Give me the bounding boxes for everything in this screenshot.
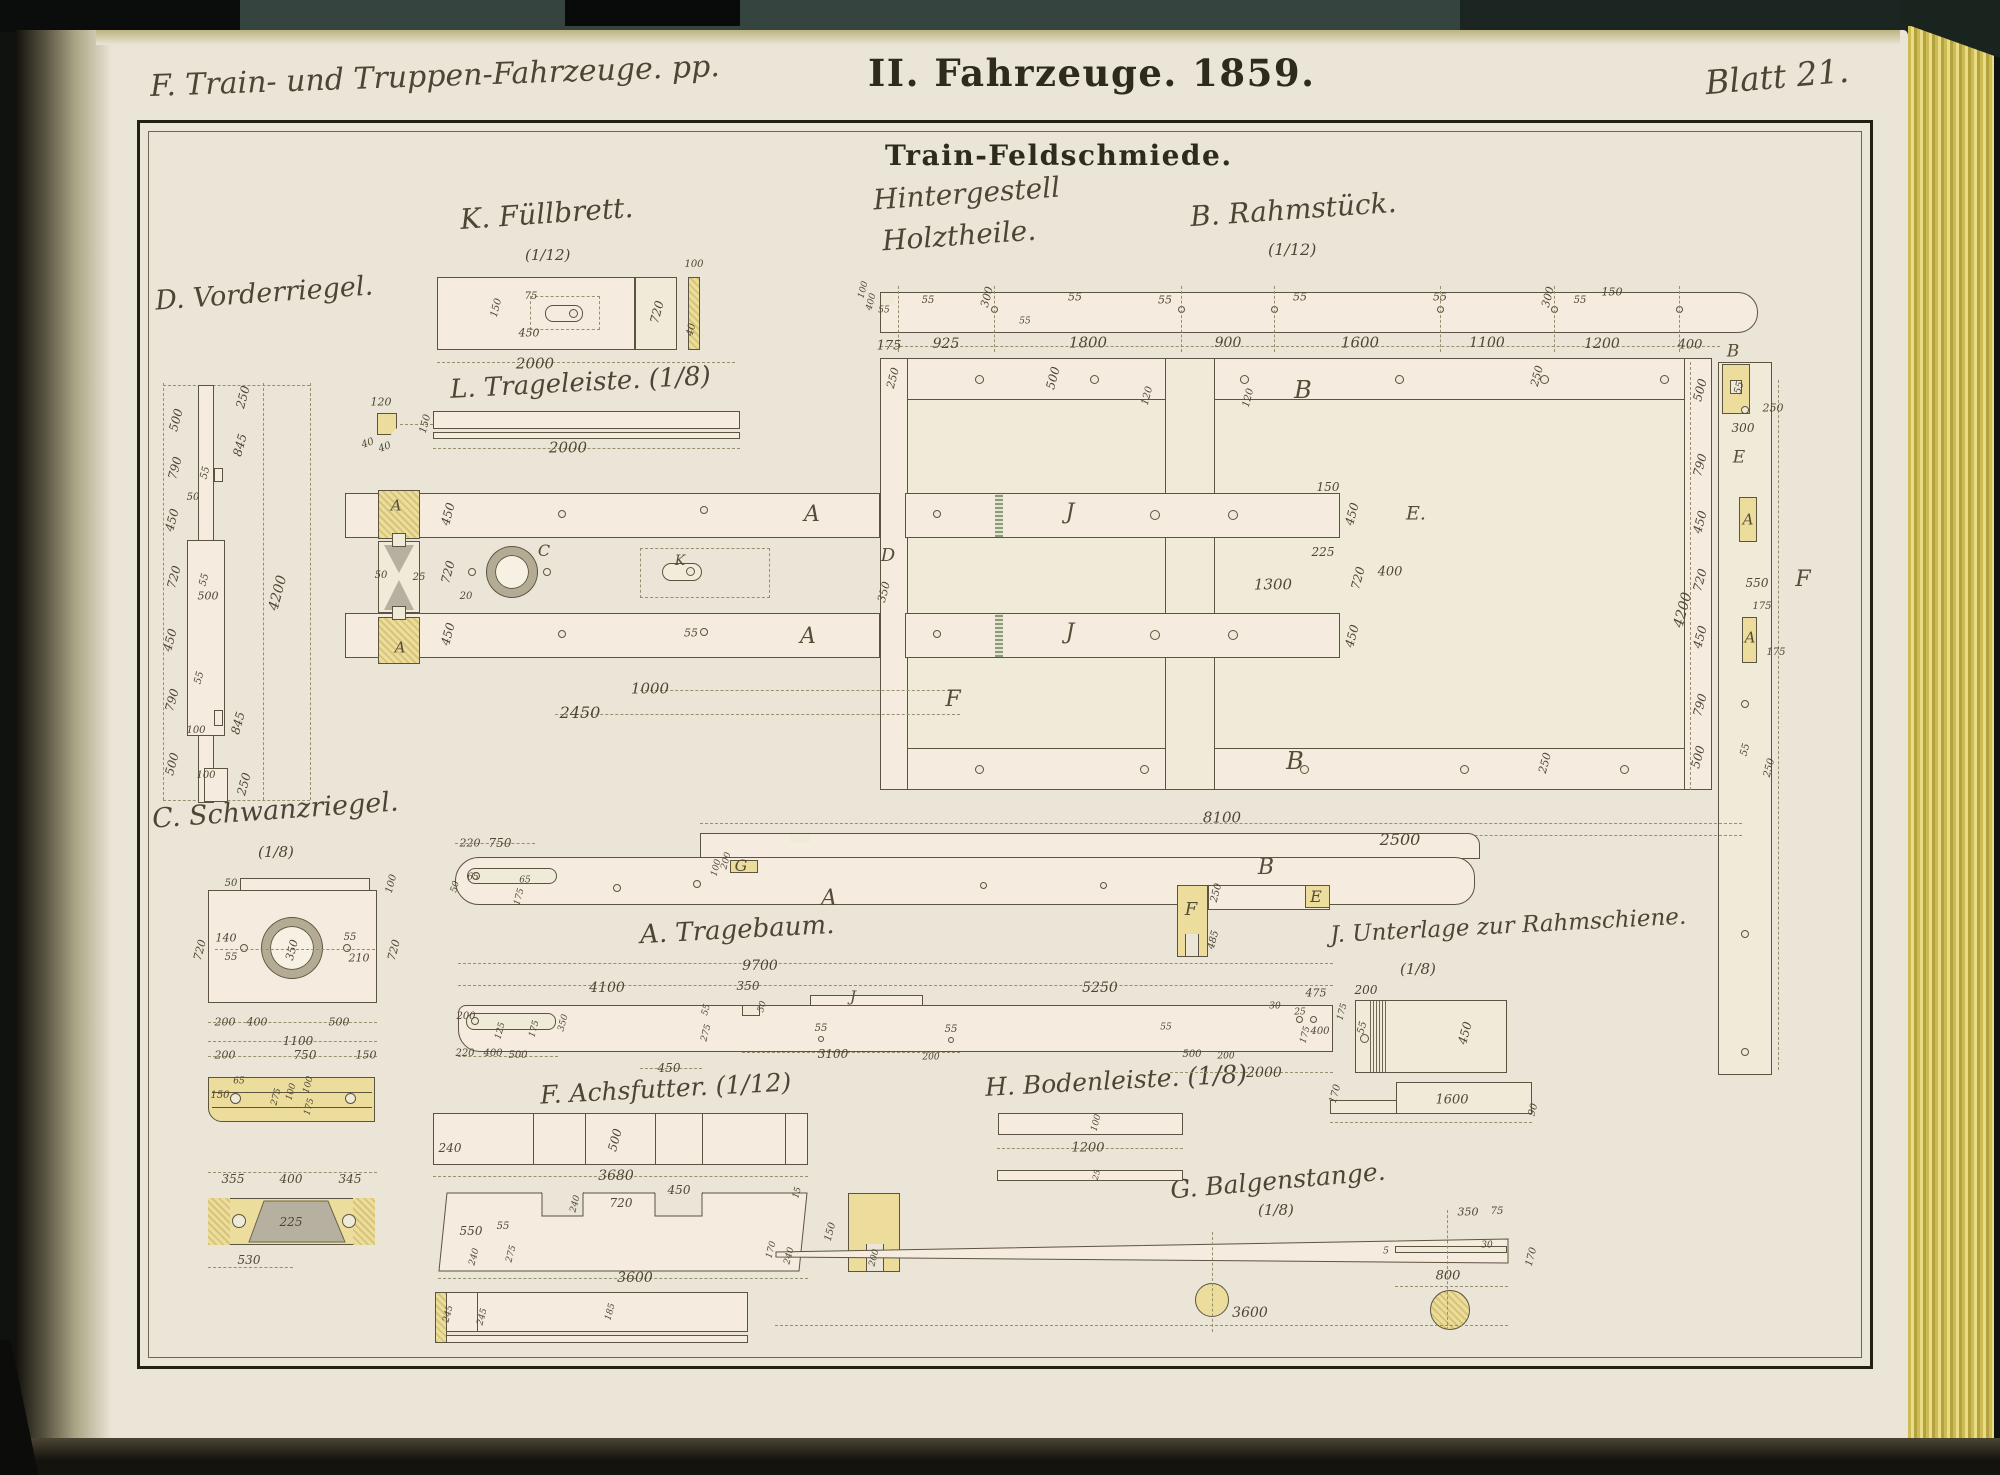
- dimension-label: 790: [166, 455, 184, 480]
- part-letter-label: F: [1795, 569, 1810, 591]
- dimension-label: 50: [450, 880, 462, 893]
- dimension-label: 450: [439, 621, 457, 646]
- dimension-label: 500: [163, 751, 181, 776]
- part-letter-label: A: [1745, 631, 1756, 646]
- dimension-label: 4100: [589, 981, 625, 995]
- dimension-label: 250: [235, 771, 253, 796]
- dimension-label: 450: [1691, 509, 1709, 534]
- dimension-label: 175: [877, 340, 902, 353]
- dimension-label: 55: [701, 1003, 713, 1016]
- dimension-label: 120: [1242, 387, 1257, 408]
- dimension-label: 720: [439, 559, 457, 584]
- dimension-label: 100: [186, 726, 205, 736]
- dimension-label: 65: [519, 877, 530, 886]
- part-letter-label: A: [395, 641, 406, 656]
- dimension-label: 50: [375, 571, 388, 581]
- part-letter-label: J: [1066, 502, 1075, 524]
- dimension-label: 240: [783, 1247, 796, 1266]
- dimension-label: 450: [163, 507, 181, 532]
- dimension-label: 720: [165, 564, 183, 589]
- dimension-label: 210: [349, 953, 370, 964]
- dimension-label: 400: [1378, 566, 1403, 579]
- dimension-label: 150: [356, 1050, 377, 1061]
- dimension-label: 175: [303, 1098, 316, 1117]
- part-letter-label: A: [800, 626, 816, 648]
- part-letter-label: B: [1294, 378, 1312, 402]
- dimension-label: 450: [1456, 1020, 1474, 1045]
- dimension-label: 150: [1602, 287, 1623, 298]
- part-letter-label: D: [881, 547, 895, 565]
- part-letter-label: J: [850, 990, 856, 1005]
- part-letter-label: A: [1743, 513, 1754, 528]
- dimension-label: 100: [1090, 1114, 1103, 1133]
- dimension-label: 1200: [1584, 337, 1620, 351]
- dimension-label: 120: [1141, 385, 1156, 406]
- dimension-label: 350: [557, 1014, 570, 1033]
- dimension-label: 55: [1740, 743, 1753, 758]
- dimension-label: 1000: [631, 682, 669, 697]
- dimension-label: 9700: [742, 959, 778, 973]
- dim-labels-layer: 5002508457905550450720555004200450557901…: [0, 0, 2000, 1475]
- dimension-label: 300: [979, 285, 995, 308]
- dimension-label: 790: [1691, 452, 1709, 477]
- dimension-label: 5250: [1082, 981, 1118, 995]
- dimension-label: 55: [1160, 1024, 1171, 1033]
- dimension-label: 790: [1691, 692, 1709, 717]
- dimension-label: 2500: [1380, 832, 1421, 848]
- dimension-label: 55: [199, 573, 212, 588]
- dimension-label: 1600: [1435, 1094, 1468, 1107]
- dimension-label: 75: [1491, 1207, 1504, 1217]
- dimension-label: 220: [460, 838, 481, 849]
- dimension-label: 750: [294, 1049, 317, 1061]
- dimension-label: 200: [922, 1054, 939, 1063]
- book-scan-page: F. Train- und Truppen-Fahrzeuge. pp. II.…: [0, 0, 2000, 1475]
- dimension-label: 40: [360, 437, 375, 451]
- dimension-label: 120: [371, 397, 392, 408]
- dimension-label: 400: [280, 1173, 303, 1185]
- dimension-label: 720: [610, 1197, 633, 1209]
- dimension-label: 200: [1217, 1053, 1234, 1062]
- dimension-label: 245: [476, 1308, 489, 1327]
- part-letter-label: G: [735, 858, 748, 874]
- part-letter-label: C: [538, 543, 550, 559]
- dimension-label: 55: [194, 671, 207, 686]
- dimension-label: 55: [815, 1024, 828, 1034]
- dimension-label: 450: [668, 1184, 691, 1196]
- part-letter-label: E.: [1406, 505, 1426, 524]
- dimension-label: 125: [494, 1022, 507, 1041]
- dimension-label: 275: [270, 1088, 283, 1107]
- dimension-label: 300: [1732, 422, 1755, 434]
- dimension-label: 500: [1689, 744, 1707, 769]
- dimension-label: 3600: [1232, 1306, 1268, 1320]
- dimension-label: 20: [460, 592, 473, 602]
- part-letter-label: A: [391, 499, 402, 514]
- dimension-label: 170: [765, 1241, 778, 1260]
- dimension-label: 790: [163, 687, 181, 712]
- part-letter-label: K: [675, 554, 685, 568]
- dimension-label: 500: [198, 591, 219, 602]
- dimension-label: 200: [1355, 984, 1378, 996]
- dimension-label: 55: [1293, 292, 1307, 303]
- dimension-label: 25: [413, 573, 426, 583]
- dimension-label: 275: [700, 1024, 713, 1043]
- dimension-label: 250: [1529, 364, 1545, 387]
- dimension-label: 55: [1068, 292, 1082, 303]
- dimension-label: 40: [686, 323, 699, 338]
- dimension-label: 355: [222, 1173, 245, 1185]
- dimension-label: 2450: [560, 705, 601, 721]
- dimension-label: 720: [192, 938, 208, 961]
- dimension-label: 500: [329, 1017, 350, 1028]
- dimension-label: 1300: [1254, 578, 1292, 593]
- dimension-label: 450: [161, 627, 179, 652]
- dimension-label: 25: [1294, 1009, 1305, 1018]
- part-letter-label: E: [1733, 450, 1745, 467]
- dimension-label: 55: [497, 1222, 510, 1232]
- dimension-label: 400: [865, 293, 878, 312]
- dimension-label: 2000: [516, 357, 554, 372]
- part-letter-label: B: [1258, 857, 1274, 879]
- dimension-label: 800: [1436, 1270, 1461, 1283]
- dimension-label: 750: [489, 837, 512, 849]
- dimension-label: 100: [385, 873, 400, 894]
- dimension-label: 55: [200, 466, 213, 481]
- dimension-label: 245: [442, 1305, 455, 1324]
- dimension-label: 150: [490, 297, 505, 318]
- dimension-label: 140: [216, 933, 237, 944]
- dimension-label: 185: [604, 1303, 617, 1322]
- part-letter-label: A: [804, 504, 820, 526]
- dimension-label: 450: [1691, 624, 1709, 649]
- dimension-label: 3100: [818, 1048, 849, 1060]
- dimension-label: 925: [933, 337, 960, 351]
- dimension-label: 1200: [1071, 1142, 1104, 1155]
- dimension-label: 55: [344, 933, 357, 943]
- dimension-label: 100: [285, 1083, 298, 1102]
- dimension-label: 3680: [598, 1169, 634, 1183]
- dimension-label: 240: [439, 1142, 462, 1154]
- dimension-label: 30: [1269, 1003, 1280, 1012]
- dimension-label: 400: [483, 1049, 502, 1059]
- dimension-label: 170: [1329, 1083, 1344, 1104]
- dimension-label: 40: [377, 441, 392, 455]
- dimension-label: 400: [1678, 339, 1703, 352]
- dimension-label: 175: [1752, 602, 1771, 612]
- dimension-label: 400: [247, 1017, 268, 1028]
- dimension-label: 175: [1766, 648, 1785, 658]
- dimension-label: 250: [885, 366, 901, 389]
- dimension-label: 350: [876, 580, 892, 603]
- dimension-label: 100: [684, 260, 703, 270]
- dimension-label: 720: [1691, 567, 1709, 592]
- part-letter-label: J: [1066, 622, 1075, 644]
- dimension-label: 65: [233, 1078, 244, 1087]
- dimension-label: 55: [1574, 296, 1587, 306]
- dimension-label: 450: [1343, 623, 1361, 648]
- dimension-label: 4200: [1672, 591, 1695, 629]
- dimension-label: 55: [1019, 318, 1030, 327]
- dimension-label: 2000: [1246, 1066, 1282, 1080]
- dimension-label: 500: [508, 1051, 527, 1061]
- dimension-label: 500: [167, 407, 185, 432]
- dimension-label: 350: [1458, 1207, 1479, 1218]
- dimension-label: 250: [1763, 757, 1778, 778]
- dimension-label: 200: [720, 852, 733, 871]
- dimension-label: 55: [684, 628, 698, 639]
- dimension-label: 150: [419, 413, 434, 434]
- dimension-label: 275: [505, 1245, 518, 1264]
- dimension-label: 500: [1182, 1050, 1201, 1060]
- dimension-label: 720: [1349, 565, 1367, 590]
- dimension-label: 55: [878, 307, 889, 316]
- dimension-label: 55: [1433, 292, 1447, 303]
- dimension-label: 55: [945, 1025, 958, 1035]
- dimension-label: 250: [1763, 403, 1784, 414]
- dimension-label: 150: [210, 1091, 229, 1101]
- dimension-label: 200: [215, 1017, 236, 1028]
- dimension-label: 300: [1540, 285, 1556, 308]
- dimension-label: 5: [1383, 1248, 1389, 1257]
- dimension-label: 15: [792, 1186, 804, 1199]
- dimension-label: 240: [569, 1195, 582, 1214]
- dimension-label: 65: [467, 874, 478, 883]
- dimension-label: 400: [1310, 1027, 1329, 1037]
- dimension-label: 900: [1215, 336, 1242, 350]
- dimension-label: 90: [1528, 1103, 1541, 1118]
- dimension-label: 475: [1306, 988, 1327, 999]
- dimension-label: 55: [922, 296, 935, 306]
- dimension-label: 55: [1357, 1021, 1370, 1036]
- dimension-label: 1800: [1069, 336, 1107, 351]
- dimension-label: 220: [455, 1049, 474, 1059]
- dimension-label: 55: [1734, 381, 1747, 396]
- part-letter-label: E: [1310, 889, 1322, 905]
- dimension-label: 225: [280, 1216, 303, 1228]
- dimension-label: 150: [1317, 481, 1340, 493]
- dimension-label: 150: [824, 1221, 839, 1242]
- part-letter-label: F: [1185, 901, 1198, 919]
- dimension-label: 1100: [283, 1035, 314, 1047]
- dimension-label: 225: [1312, 546, 1335, 558]
- dimension-label: 550: [1746, 577, 1769, 589]
- dimension-label: 845: [229, 710, 247, 735]
- dimension-label: 450: [1343, 501, 1361, 526]
- dimension-label: 450: [658, 1062, 681, 1074]
- dimension-label: 240: [468, 1248, 481, 1267]
- dimension-label: 720: [648, 299, 666, 324]
- dimension-label: 350: [284, 938, 300, 961]
- dimension-label: 175: [513, 888, 526, 907]
- part-letter-label: F: [945, 689, 960, 711]
- dimension-label: 345: [339, 1173, 362, 1185]
- dimension-label: 2000: [549, 441, 587, 456]
- dimension-label: 720: [386, 938, 402, 961]
- dimension-label: 1100: [1469, 336, 1505, 350]
- dimension-label: 55: [225, 953, 238, 963]
- dimension-label: 530: [238, 1254, 261, 1266]
- dimension-label: 50: [187, 493, 200, 503]
- dimension-label: 500: [1044, 365, 1062, 390]
- dimension-label: 845: [231, 432, 249, 457]
- dimension-label: 250: [234, 384, 252, 409]
- part-letter-label: B: [1727, 344, 1740, 361]
- dimension-label: 3600: [617, 1271, 653, 1285]
- dimension-label: 50: [757, 1000, 769, 1013]
- dimension-label: 100: [196, 771, 215, 781]
- dimension-label: 30: [1481, 1242, 1492, 1251]
- dimension-label: 450: [519, 328, 540, 339]
- dimension-label: 8100: [1203, 811, 1241, 826]
- dimension-label: 350: [737, 980, 760, 992]
- dimension-label: 200: [215, 1050, 236, 1061]
- dimension-label: 50: [225, 879, 238, 889]
- dimension-label: 75: [525, 292, 538, 302]
- dimension-label: 175: [1336, 1003, 1349, 1022]
- dimension-label: 1600: [1341, 336, 1379, 351]
- dimension-label: 250: [1537, 751, 1553, 774]
- dimension-label: 500: [1691, 377, 1709, 402]
- dimension-label: 175: [528, 1020, 541, 1039]
- dimension-label: 4200: [267, 574, 290, 612]
- dimension-label: 500: [606, 1127, 624, 1152]
- dimension-label: 200: [456, 1012, 475, 1022]
- dimension-label: 200: [868, 1249, 881, 1268]
- part-letter-label: A: [821, 888, 837, 910]
- part-letter-label: B: [1286, 749, 1304, 773]
- dimension-label: 450: [439, 501, 457, 526]
- dimension-label: 250: [1210, 882, 1225, 903]
- dimension-label: 100: [302, 1076, 315, 1095]
- dimension-label: 170: [1525, 1246, 1540, 1267]
- dimension-label: 25: [1092, 1169, 1102, 1181]
- dimension-label: 485: [1207, 929, 1222, 950]
- dimension-label: 550: [460, 1225, 483, 1237]
- dimension-label: 55: [1158, 295, 1172, 306]
